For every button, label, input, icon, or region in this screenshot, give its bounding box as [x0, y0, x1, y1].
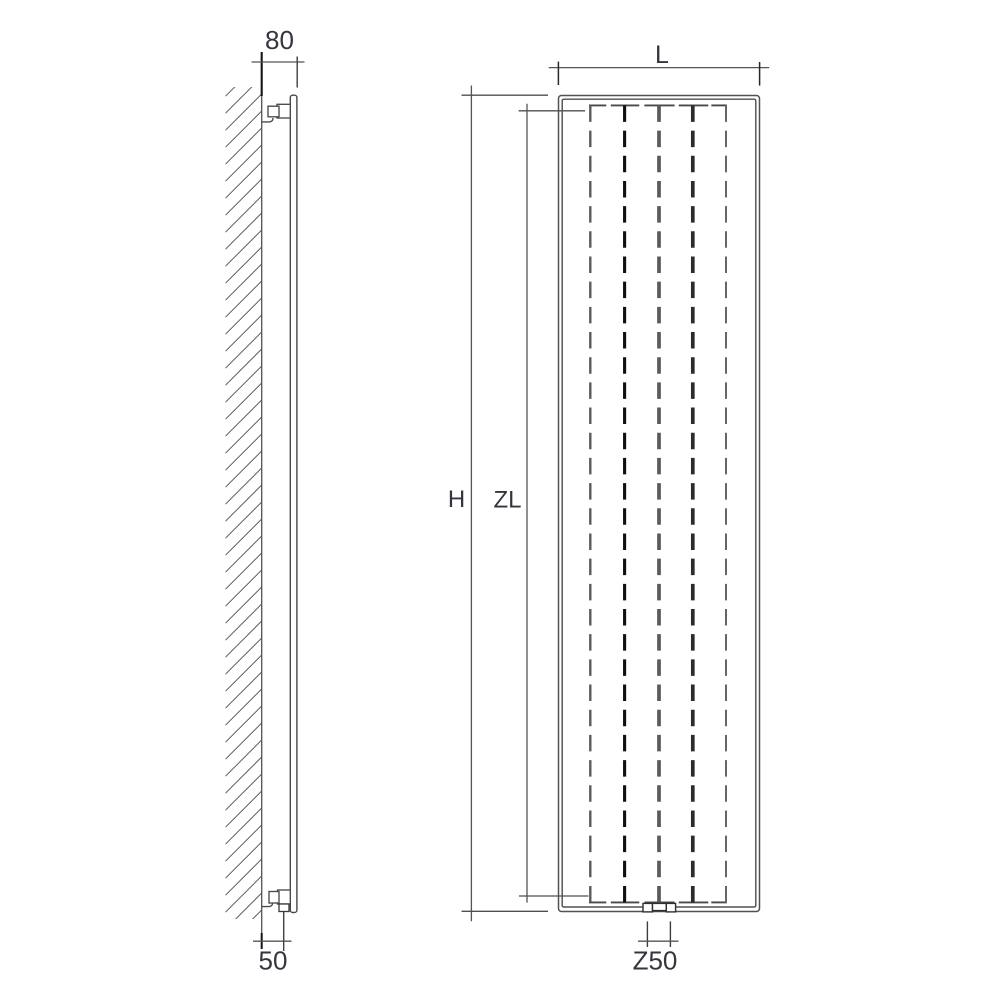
svg-text:80: 80 [265, 25, 294, 55]
svg-text:L: L [655, 41, 669, 69]
svg-text:ZL: ZL [493, 487, 521, 514]
svg-text:Z50: Z50 [633, 946, 678, 976]
svg-text:H: H [448, 486, 465, 513]
svg-text:50: 50 [259, 946, 288, 976]
